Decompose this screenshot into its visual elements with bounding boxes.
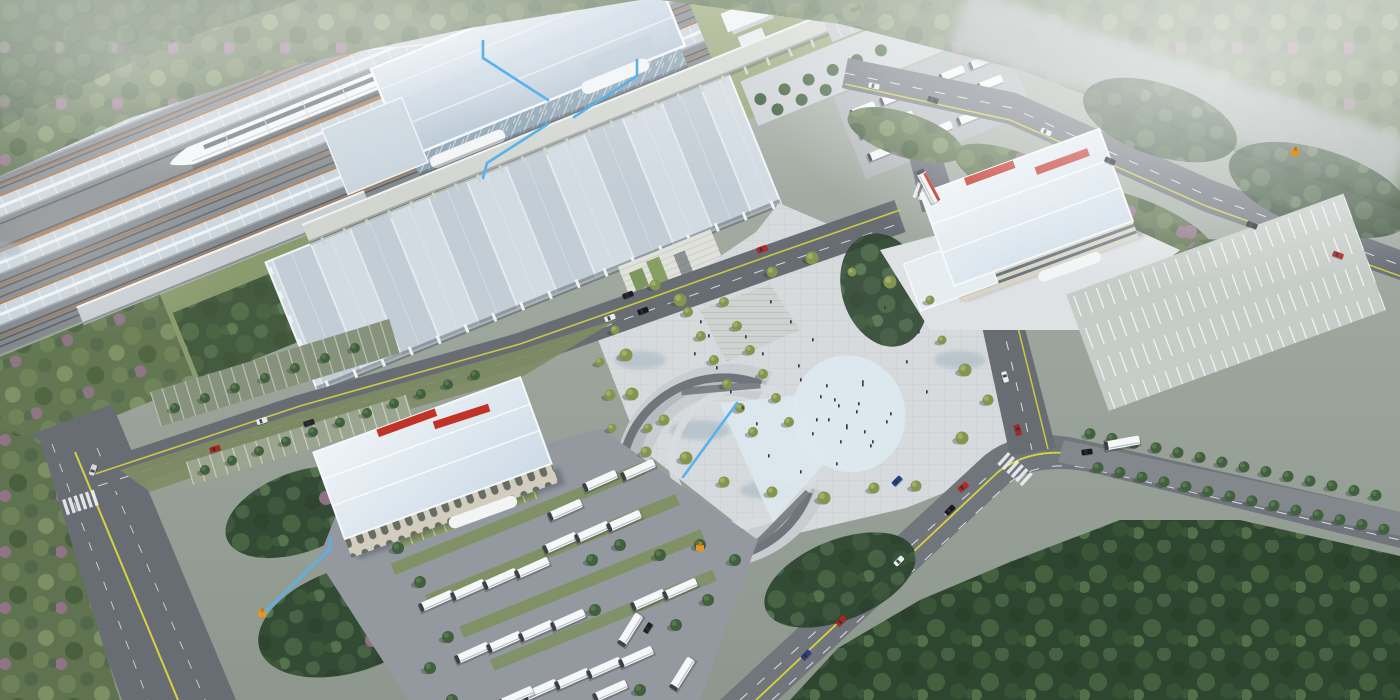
pedestrian (846, 424, 848, 428)
tree-icon (1284, 472, 1289, 477)
tree-icon (1240, 463, 1245, 468)
tree-icon (231, 384, 236, 389)
tree-icon (417, 390, 422, 395)
tree-icon (772, 394, 777, 399)
tree-icon (720, 298, 725, 303)
tree-icon (426, 664, 431, 669)
tree-icon (1270, 501, 1275, 506)
pedestrian (745, 335, 747, 339)
pedestrian (790, 320, 792, 324)
pedestrian (770, 300, 772, 304)
tree-icon (309, 428, 314, 433)
tree-icon (1152, 444, 1157, 449)
pedestrian (762, 352, 764, 356)
tree-icon (1226, 492, 1231, 497)
pedestrian (700, 320, 702, 324)
tree-icon (960, 365, 966, 371)
pedestrian (708, 334, 710, 338)
tree-icon (660, 416, 665, 421)
tree-icon (642, 448, 647, 453)
pedestrian (870, 444, 872, 448)
tree-icon (1248, 497, 1253, 502)
tree-icon (1358, 520, 1363, 525)
station-aerial-rendering (0, 0, 1400, 700)
tree-icon (394, 544, 399, 549)
tree-icon (201, 466, 206, 471)
tree-icon (1086, 430, 1091, 435)
tree-icon (1306, 477, 1311, 482)
tree-icon (651, 281, 656, 286)
tree-icon (201, 394, 206, 399)
pedestrian (756, 422, 758, 426)
tree-icon (1328, 482, 1333, 487)
tree-icon (870, 484, 875, 489)
tree-icon (1138, 473, 1143, 478)
pedestrian (800, 470, 802, 474)
tree-icon (606, 391, 611, 396)
pedestrian (890, 412, 892, 416)
tree-icon (1204, 487, 1209, 492)
tree-icon (363, 409, 368, 414)
tree-icon (609, 425, 613, 429)
tree-icon (588, 556, 593, 561)
tree-icon (684, 308, 689, 313)
pedestrian (884, 306, 886, 310)
tree-icon (1262, 467, 1267, 472)
tree-icon (1292, 506, 1297, 511)
pedestrian (816, 418, 818, 422)
tree-icon (636, 686, 641, 691)
tree-icon (704, 596, 709, 601)
tree-icon (351, 344, 356, 349)
pedestrian (886, 420, 888, 424)
tree-icon (819, 493, 825, 499)
pedestrian (716, 366, 718, 370)
pedestrian (768, 454, 770, 458)
tree-icon (939, 337, 943, 341)
tree-icon (768, 488, 773, 493)
tree-icon (733, 322, 738, 327)
tree-icon (444, 381, 449, 386)
tree-icon (746, 346, 751, 351)
pedestrian (800, 378, 802, 382)
tree-icon (171, 404, 176, 409)
tree-icon (957, 433, 963, 439)
pedestrian (812, 338, 814, 342)
tree-icon (697, 332, 702, 337)
tree-icon (1372, 491, 1377, 496)
rendering-canvas (0, 0, 1400, 700)
orange-marker (261, 608, 264, 612)
orange-marker (1294, 147, 1297, 151)
tree-icon (984, 396, 989, 401)
pedestrian (918, 330, 920, 334)
tree-icon (612, 327, 616, 331)
tree-icon (807, 253, 813, 259)
pedestrian (742, 406, 744, 410)
tree-icon (1336, 516, 1341, 521)
pedestrian (926, 390, 928, 394)
tree-icon (282, 438, 287, 443)
tree-icon (885, 277, 891, 283)
pedestrian (834, 398, 836, 402)
tree-icon (645, 425, 649, 429)
tree-icon (627, 389, 633, 395)
pedestrian (826, 384, 828, 388)
tree-icon (768, 268, 773, 273)
tree-icon (616, 541, 621, 546)
pedestrian (856, 410, 858, 414)
tree-icon (1350, 486, 1355, 491)
tree-icon (749, 428, 754, 433)
tree-icon (390, 400, 395, 405)
tree-icon (597, 359, 601, 363)
tree-icon (471, 371, 476, 376)
tree-icon (672, 621, 677, 626)
tree-icon (255, 447, 260, 452)
pedestrian (828, 418, 830, 422)
tree-icon (1116, 468, 1121, 473)
tree-icon (759, 370, 764, 375)
pedestrian (906, 360, 908, 364)
orange-marker (699, 542, 702, 546)
tree-icon (321, 354, 326, 359)
pedestrian (840, 440, 842, 444)
tree-icon (291, 364, 296, 369)
tree-icon (261, 374, 266, 379)
tree-icon (849, 269, 853, 273)
tree-icon (444, 633, 449, 638)
tree-icon (710, 356, 715, 361)
tree-icon (336, 419, 341, 424)
tree-icon (681, 453, 687, 459)
tree-icon (591, 606, 596, 611)
pedestrian (858, 402, 860, 406)
pedestrian (872, 440, 874, 444)
tree-icon (1108, 434, 1113, 439)
tree-icon (1380, 525, 1385, 530)
pedestrian (812, 432, 814, 436)
tree-icon (621, 350, 627, 356)
tree-icon (1196, 453, 1201, 458)
pedestrian (864, 430, 866, 434)
tree-icon (785, 418, 790, 423)
tree-icon (416, 578, 421, 583)
tree-icon (1218, 458, 1223, 463)
tree-icon (731, 556, 736, 561)
tree-icon (1174, 449, 1179, 454)
pedestrian (862, 383, 864, 387)
tree-icon (675, 295, 681, 301)
tree-icon (1160, 478, 1165, 483)
pedestrian (836, 462, 838, 466)
tree-icon (1314, 511, 1319, 516)
pedestrian (820, 395, 822, 399)
tree-icon (912, 482, 917, 487)
tree-icon (927, 297, 931, 301)
tree-icon (1182, 483, 1187, 488)
tree-icon (723, 380, 728, 385)
tree-icon (1094, 464, 1099, 469)
pedestrian (838, 404, 840, 408)
pedestrian (798, 364, 800, 368)
tree-icon (656, 551, 661, 556)
pedestrian (694, 352, 696, 356)
pedestrian (730, 390, 732, 394)
tree-icon (720, 478, 725, 483)
tree-icon (228, 457, 233, 462)
